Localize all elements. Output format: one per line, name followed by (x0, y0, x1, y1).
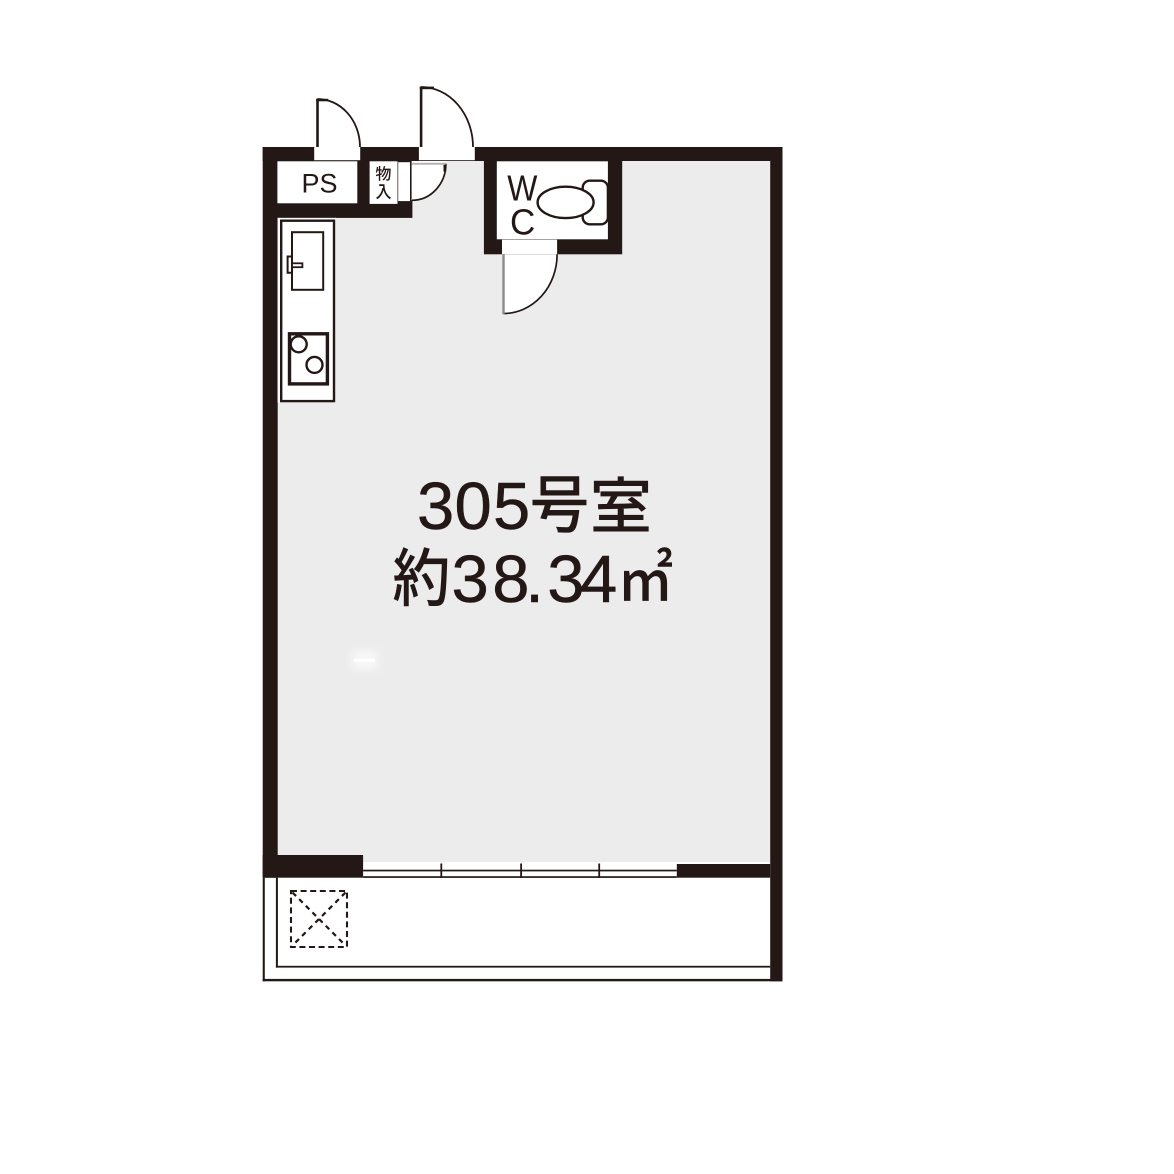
svg-text:3: 3 (452, 542, 489, 617)
svg-text:C: C (510, 202, 535, 243)
svg-text:3: 3 (547, 542, 584, 617)
svg-text:0: 0 (455, 469, 492, 544)
svg-text:.: . (525, 542, 544, 617)
svg-text:3: 3 (417, 469, 454, 544)
svg-text:8: 8 (492, 542, 529, 617)
svg-text:PS: PS (301, 169, 337, 199)
svg-text:4: 4 (580, 542, 617, 617)
svg-text:5: 5 (493, 469, 530, 544)
